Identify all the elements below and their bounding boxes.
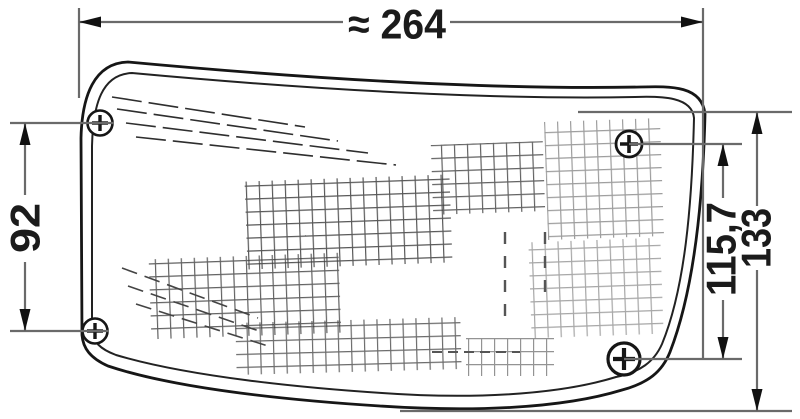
arrowhead-up-icon <box>718 144 729 166</box>
arrowhead-down-icon <box>20 309 31 331</box>
arrowhead-up-icon <box>20 123 31 145</box>
dimension-left-mount-height: 92 <box>2 123 115 331</box>
lens-optic-texture <box>122 118 664 376</box>
arrowhead-up-icon <box>752 112 763 134</box>
technical-drawing-canvas: ≈ 264 92 115,7 133 <box>0 0 800 419</box>
optic-grid-band <box>235 317 461 375</box>
dim-overall-height-label: 133 <box>733 208 780 268</box>
optic-grid-band <box>544 118 664 240</box>
dim-left-mount-height-label: 92 <box>2 203 49 253</box>
arrowhead-down-icon <box>718 337 729 359</box>
arrowhead-right-icon <box>681 17 703 28</box>
optic-grid-band <box>466 338 554 376</box>
optic-grid-band <box>528 238 663 339</box>
lamp-dimension-drawing: ≈ 264 92 115,7 133 <box>0 0 800 419</box>
arrowhead-down-icon <box>752 389 763 411</box>
optic-grid-band <box>431 141 545 215</box>
arrowhead-left-icon <box>79 17 101 28</box>
dim-overall-width-label: ≈ 264 <box>348 1 447 48</box>
